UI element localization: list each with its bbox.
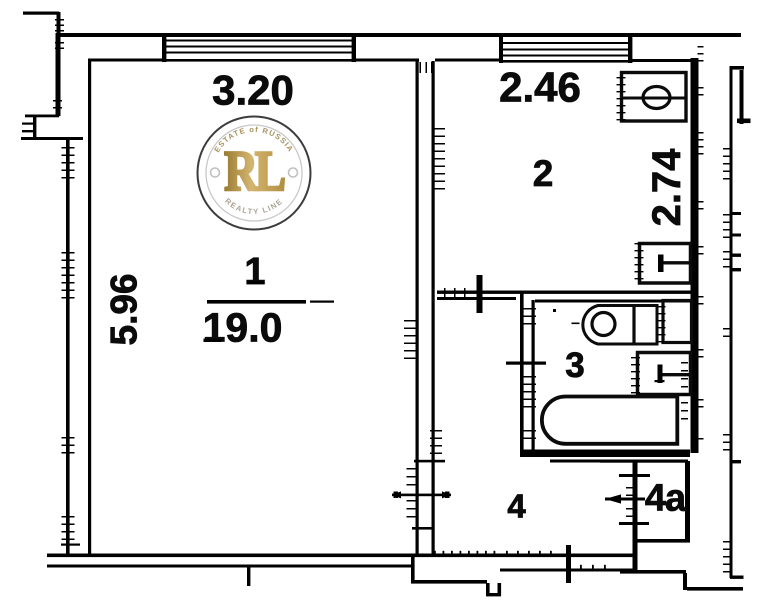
svg-text:1: 1 [244, 251, 265, 293]
svg-text:19.0: 19.0 [203, 305, 283, 351]
svg-text:3.20: 3.20 [212, 67, 294, 114]
svg-text:RL: RL [224, 141, 284, 203]
svg-text:2: 2 [533, 153, 554, 194]
svg-text:2.74: 2.74 [645, 148, 689, 227]
svg-text:5.96: 5.96 [104, 273, 145, 345]
svg-text:2.46: 2.46 [499, 64, 581, 111]
svg-text:3: 3 [565, 346, 584, 385]
svg-text:4a: 4a [645, 478, 687, 520]
svg-text:4: 4 [507, 488, 526, 525]
